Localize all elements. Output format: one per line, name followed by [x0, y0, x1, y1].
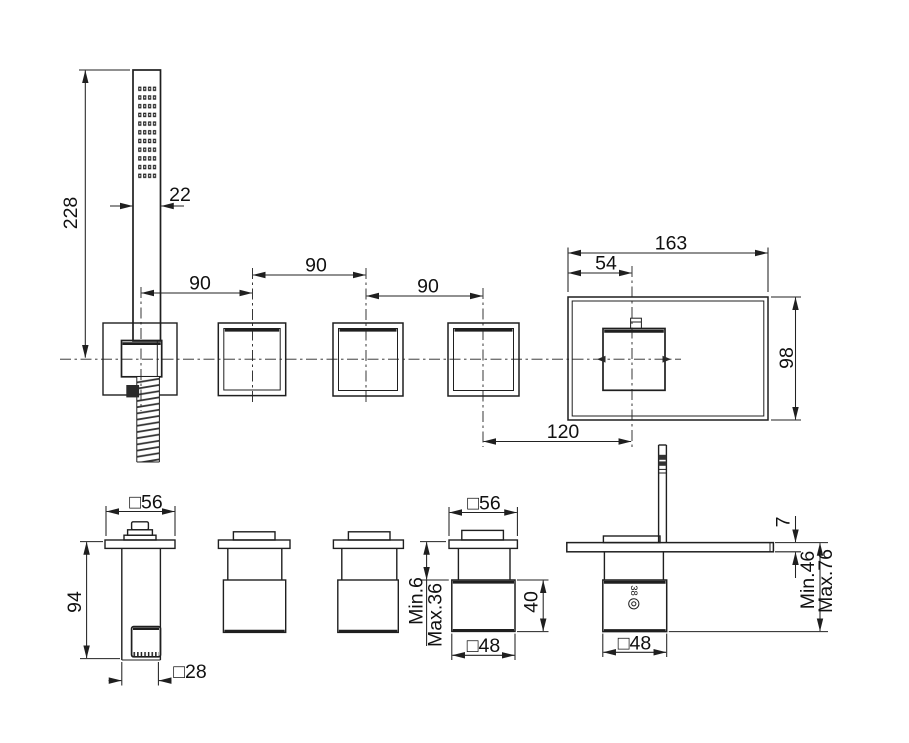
dim-label-90b: 90: [305, 255, 327, 277]
dim-label-sq48b: □48: [618, 633, 651, 655]
dim-label-max76: Max.76: [815, 549, 837, 613]
dim-label-sq28: □28: [173, 661, 206, 683]
dim-label-sq56a: □56: [129, 492, 162, 514]
dim-label-54: 54: [595, 253, 617, 275]
dim-label-40: 40: [521, 591, 543, 613]
dim-label-163: 163: [655, 233, 688, 255]
dim-label-22: 22: [169, 184, 191, 206]
technical-drawing-page: 228 22 90 90 90 163 54: [0, 0, 909, 743]
spray-nozzle-grid: [138, 85, 158, 181]
spray-face-hatch: [134, 652, 160, 656]
dim-label-90c: 90: [417, 276, 439, 298]
dim-label-94: 94: [64, 591, 86, 613]
dim-label-98: 98: [776, 347, 798, 369]
hose-nut: [126, 385, 139, 397]
dim-label-max36: Max.36: [425, 583, 447, 647]
dim-label-sq56b: □56: [467, 493, 500, 515]
dim-label-7: 7: [773, 517, 795, 528]
temp-38-mark: 38: [628, 585, 639, 596]
dim-label-90a: 90: [189, 273, 211, 295]
dim-label-228: 228: [60, 197, 82, 230]
faucet-dimension-drawing: 228 22 90 90 90 163 54: [0, 0, 909, 743]
dim-label-120: 120: [547, 421, 580, 443]
dim-label-sq48a: □48: [467, 635, 500, 657]
shower-hose: [137, 377, 160, 462]
